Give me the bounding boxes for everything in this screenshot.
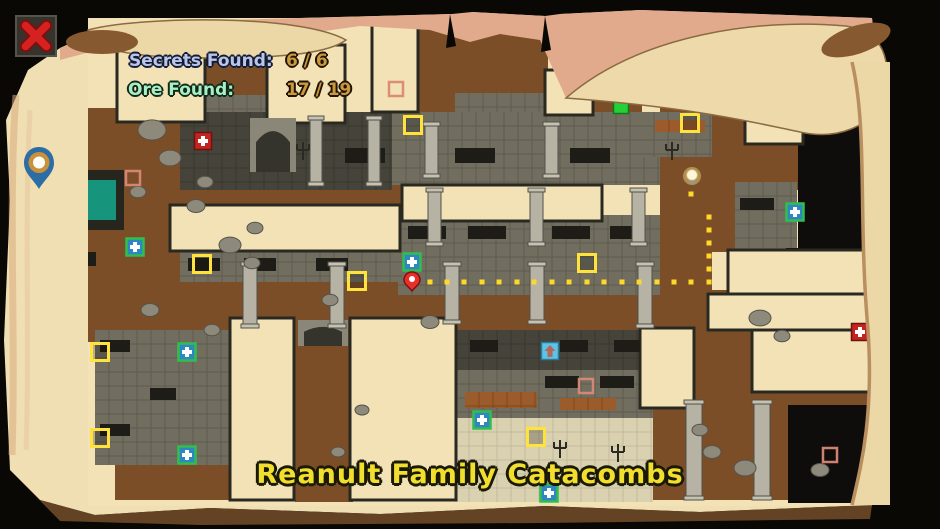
rubble-rock [159, 150, 181, 166]
path-dot [707, 280, 712, 285]
path-dot [707, 254, 712, 259]
rubble-rock [749, 310, 771, 326]
secret-marker-icon [194, 256, 211, 273]
secret-marker-icon [528, 429, 545, 446]
column-shaft [638, 266, 652, 324]
column-capital [308, 116, 324, 120]
grave-slot [468, 226, 506, 239]
column-capital [528, 262, 546, 266]
column-capital [543, 122, 560, 126]
secrets-found-value: 6 / 6 [286, 53, 328, 70]
column-capital [423, 122, 440, 126]
column-capital [752, 400, 772, 404]
column-shaft [425, 126, 438, 174]
grave-slot [150, 388, 176, 400]
arch-opening [256, 131, 290, 172]
path-dot [689, 192, 694, 197]
column-base [636, 324, 654, 328]
column-base [423, 174, 440, 178]
close-button[interactable] [15, 15, 57, 57]
rubble-rock [204, 324, 220, 336]
secret-marker-icon [405, 117, 422, 134]
column-base [241, 324, 259, 328]
rubble-rock [130, 186, 146, 198]
close-x-icon [17, 17, 55, 55]
column-shaft [632, 192, 645, 242]
path-dot [707, 241, 712, 246]
rubble-rock [421, 316, 439, 329]
column-capital [328, 262, 346, 266]
rubble-rock [692, 424, 708, 436]
region-cave [798, 126, 864, 256]
path-dot [689, 280, 694, 285]
location-pin-icon [21, 145, 57, 191]
path-dot [707, 267, 712, 272]
secret-marker-icon [92, 344, 109, 361]
column-shaft [754, 404, 770, 496]
column-shaft [545, 126, 558, 174]
path-dot [428, 280, 433, 285]
rubble-rock [187, 200, 205, 213]
column-shaft [368, 120, 380, 182]
column-capital [443, 262, 461, 266]
column-base [543, 174, 560, 178]
secret-marker-icon [92, 430, 109, 447]
rubble-rock [219, 237, 241, 253]
path-dot [515, 280, 520, 285]
column-shaft [310, 120, 322, 182]
path-dot [497, 280, 502, 285]
column-capital [528, 188, 545, 192]
path-dot [567, 280, 572, 285]
column-base [528, 320, 546, 324]
secrets-found-label: Secrets Found: [129, 53, 273, 70]
objective-bulb-icon [687, 170, 698, 181]
column-shaft [428, 192, 441, 242]
path-dot [532, 280, 537, 285]
arch-opening [304, 327, 342, 346]
rubble-rock [734, 460, 756, 476]
path-dot [445, 280, 450, 285]
rubble-rock [141, 304, 159, 317]
grave-slot [545, 376, 579, 388]
unexplored-room [708, 294, 872, 330]
map-screen: Secrets Found: 6 / 6 Ore Found: 17 / 19 … [0, 0, 940, 529]
objective-bulb-base [690, 181, 695, 185]
column-shaft [530, 192, 543, 242]
path-dot [637, 280, 642, 285]
column-capital [636, 262, 654, 266]
ore-found-label: Ore Found: [128, 82, 234, 99]
column-capital [366, 116, 382, 120]
path-dot [585, 280, 590, 285]
column-shaft [530, 266, 544, 320]
column-shaft [445, 266, 459, 320]
column-shaft [243, 266, 257, 324]
path-dot [550, 280, 555, 285]
column-base [752, 496, 772, 500]
rubble-rock [331, 447, 345, 457]
secret-marker-icon [349, 273, 366, 290]
path-dot [462, 280, 467, 285]
rubble-rock [703, 446, 721, 459]
rubble-rock [197, 176, 213, 188]
player-marker-dot [409, 276, 415, 282]
rubble-rock [244, 257, 260, 269]
column-base [328, 324, 346, 328]
grave-slot [560, 340, 588, 352]
path-dot [707, 228, 712, 233]
path-dot [620, 280, 625, 285]
column-capital [426, 188, 443, 192]
unexplored-room [640, 328, 694, 408]
rubble-rock [138, 120, 166, 140]
grave-slot [552, 226, 590, 239]
grave-slot [470, 340, 498, 352]
page-title: Reanult Family Catacombs [256, 461, 683, 488]
path-dot [672, 280, 677, 285]
column-base [443, 320, 461, 324]
grave-slot [614, 340, 640, 352]
secret-marker-icon [682, 115, 699, 132]
column-shaft [686, 404, 702, 496]
rubble-rock [247, 222, 263, 234]
column-base [308, 182, 324, 186]
rubble-rock [811, 464, 829, 477]
scroll-curl-topleft-opening [66, 30, 138, 54]
column-base [630, 242, 647, 246]
grave-slot [740, 198, 774, 210]
column-base [426, 242, 443, 246]
rubble-rock [355, 405, 369, 415]
parchment-left-shading [12, 95, 16, 455]
column-capital [630, 188, 647, 192]
grave-slot [570, 148, 610, 163]
path-dot [655, 280, 660, 285]
column-base [528, 242, 545, 246]
unexplored-room [170, 205, 400, 251]
ore-found-value: 17 / 19 [286, 82, 351, 99]
secret-marker-icon [579, 255, 596, 272]
column-base [684, 496, 704, 500]
rubble-rock [322, 294, 338, 306]
grave-slot [455, 148, 495, 163]
unexplored-room [372, 22, 418, 112]
column-base [366, 182, 382, 186]
rubble-rock [774, 330, 790, 342]
column-capital [684, 400, 704, 404]
path-dot [602, 280, 607, 285]
path-dot [480, 280, 485, 285]
grave-slot [600, 376, 634, 388]
path-dot [707, 215, 712, 220]
